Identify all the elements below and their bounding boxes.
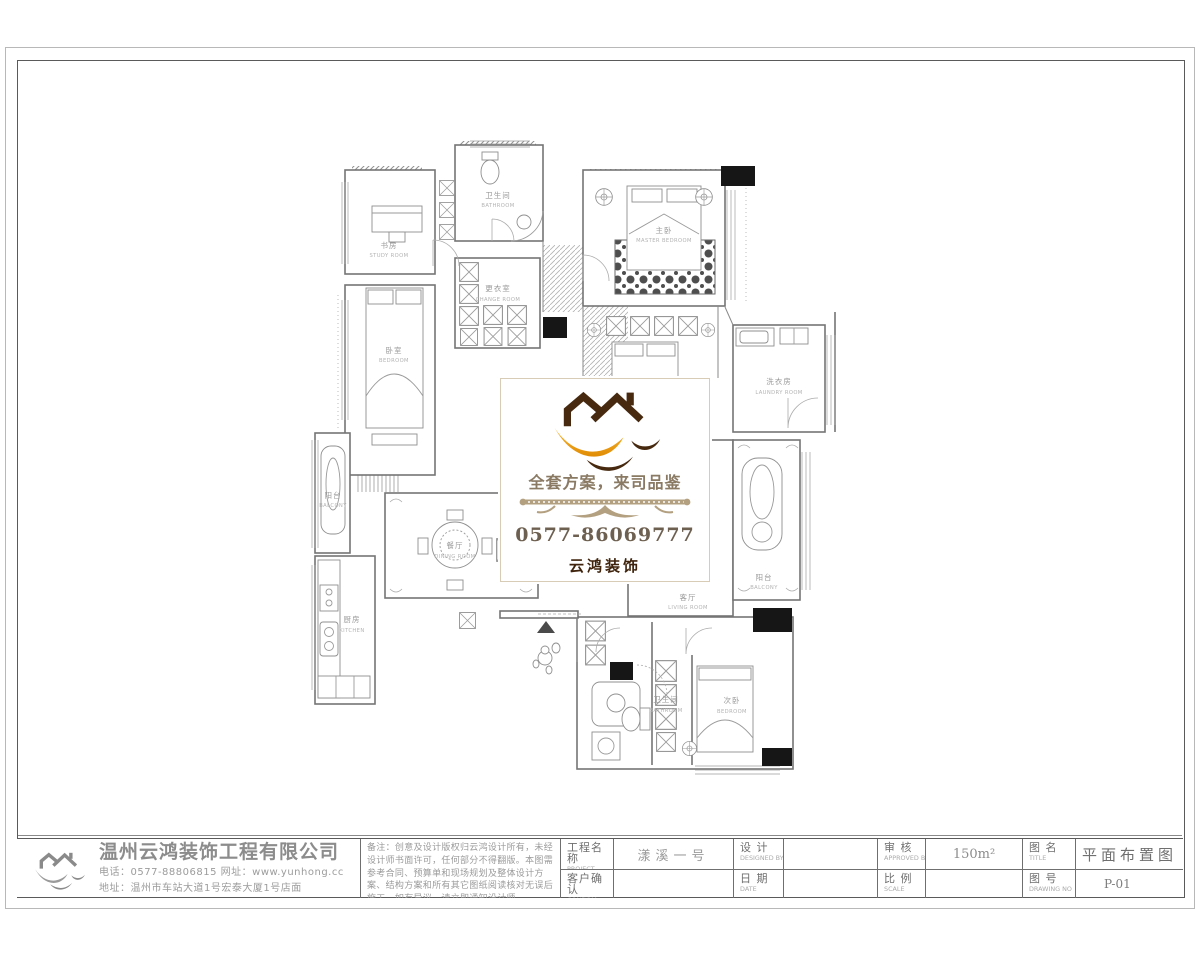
- field-confirm-value: [613, 869, 733, 898]
- entry-arrow-icon: [537, 621, 555, 633]
- company-contact-line2: 地址：温州市车站大道1号宏泰大厦1号店面: [99, 879, 344, 894]
- field-scale-value: [925, 869, 1022, 898]
- watermark-slogan: 全套方案，来司品鉴: [528, 469, 681, 493]
- company-cell: 温州云鸿装饰工程有限公司 电话：0577-88806815 网址：www.yun…: [17, 839, 360, 898]
- left-bedroom-bed: [366, 288, 423, 445]
- field-number-value: P-01: [1075, 869, 1183, 898]
- svg-text:LAUNDRY ROOM: LAUNDRY ROOM: [755, 390, 802, 396]
- notes-cell: 备注：创意及设计版权归云鸿设计所有，未经设计师书面许可，任何部分不得翻版。本图需…: [360, 839, 560, 898]
- field-date-value: [783, 869, 877, 898]
- title-block: 温州云鸿装饰工程有限公司 电话：0577-88806815 网址：www.yun…: [17, 838, 1183, 897]
- svg-text:LIVING ROOM: LIVING ROOM: [668, 605, 708, 611]
- svg-text:STUDY ROOM: STUDY ROOM: [369, 253, 408, 259]
- svg-text:餐厅: 餐厅: [447, 541, 464, 550]
- svg-text:阳台: 阳台: [325, 490, 342, 500]
- svg-text:书房: 书房: [381, 240, 398, 250]
- field-date-label: 日 期 DATE: [733, 869, 783, 898]
- svg-text:客厅: 客厅: [680, 592, 697, 602]
- svg-text:KITCHEN: KITCHEN: [339, 628, 364, 634]
- svg-text:BEDROOM: BEDROOM: [717, 709, 747, 715]
- svg-text:厨房: 厨房: [344, 614, 361, 624]
- svg-text:BALCONY: BALCONY: [319, 503, 347, 509]
- field-scale-label: 比 例 SCALE: [877, 869, 925, 898]
- titleblock-top-rule: [18, 835, 1182, 836]
- company-watermark: 全套方案，来司品鉴 0577-86069777 云鸿装饰: [500, 378, 710, 582]
- svg-text:DINING ROOM: DINING ROOM: [434, 554, 475, 560]
- company-logo-icon: [530, 383, 680, 471]
- company-logo-gray-icon: [27, 846, 91, 892]
- svg-text:主卧: 主卧: [656, 225, 673, 235]
- field-title-label: 图 名 TITLE: [1022, 839, 1075, 869]
- svg-text:卫生间: 卫生间: [653, 694, 679, 704]
- svg-text:洗衣房: 洗衣房: [766, 376, 792, 386]
- svg-text:BATHROOM: BATHROOM: [481, 203, 514, 209]
- drawing-sheet: 书房 STUDY ROOM 卫生间 BATHROOM 主卧 MASTER BED…: [0, 0, 1200, 960]
- svg-text:CHANGE ROOM: CHANGE ROOM: [476, 297, 521, 303]
- field-confirm-label: 客户确认 CONFIRM: [560, 869, 613, 898]
- field-title-value: 平面布置图: [1075, 839, 1183, 869]
- company-contact-line1: 电话：0577-88806815 网址：www.yunhong.cc: [99, 863, 344, 878]
- svg-text:次卧: 次卧: [724, 695, 741, 705]
- ornament-divider-icon: [515, 496, 695, 520]
- svg-text:BEDROOM: BEDROOM: [379, 358, 409, 364]
- svg-text:MASTER BEDROOM: MASTER BEDROOM: [636, 238, 692, 244]
- svg-text:BALCONY: BALCONY: [750, 585, 778, 591]
- field-project-value: 漾溪一号: [613, 839, 733, 869]
- bathtub-left: [321, 446, 345, 534]
- field-approved-label: 审 核 APPROVED BY: [877, 839, 925, 869]
- svg-text:更衣室: 更衣室: [485, 283, 511, 293]
- company-name: 温州云鸿装饰工程有限公司: [99, 843, 344, 863]
- field-designed-label: 设 计 DESIGNED BY: [733, 839, 783, 869]
- field-approved-value: 150m²: [925, 839, 1022, 869]
- svg-text:BATHROOM: BATHROOM: [649, 708, 682, 714]
- svg-text:阳台: 阳台: [756, 572, 773, 582]
- field-project-label: 工程名称 PROJECT: [560, 839, 613, 869]
- watermark-phone: 0577-86069777: [515, 524, 695, 546]
- entry-figure: [533, 643, 560, 674]
- laundry-counter: [736, 328, 808, 346]
- field-number-label: 图 号 DRAWING NO: [1022, 869, 1075, 898]
- watermark-brand: 云鸿装饰: [569, 555, 641, 576]
- svg-text:卫生间: 卫生间: [485, 190, 511, 200]
- field-designed-value: [783, 839, 877, 869]
- svg-text:卧室: 卧室: [386, 345, 403, 355]
